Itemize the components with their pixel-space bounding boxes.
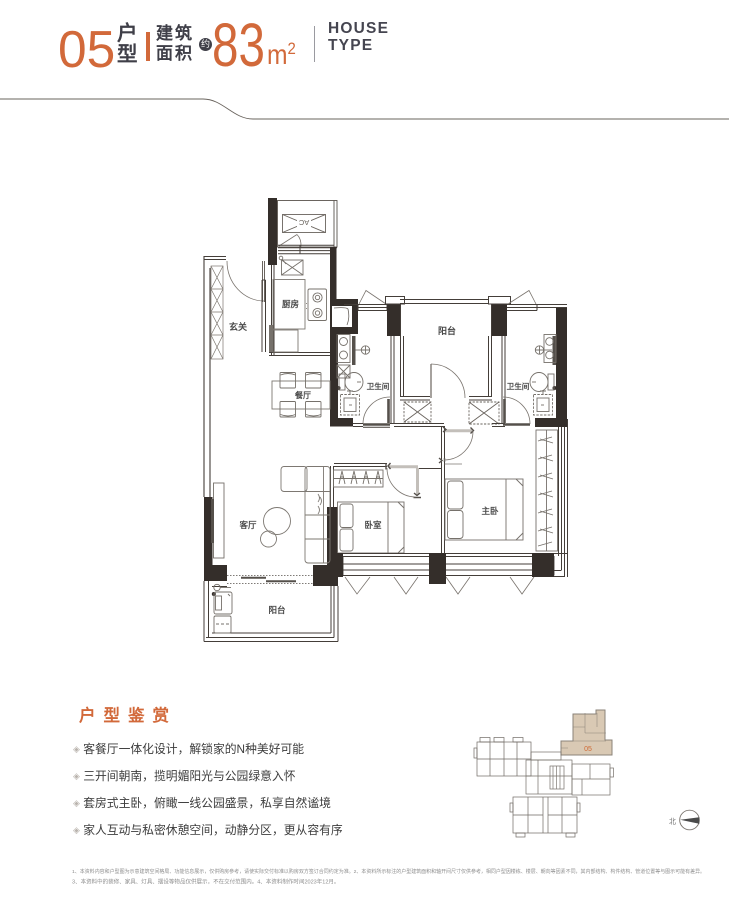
svg-text:餐厅: 餐厅 bbox=[294, 390, 311, 400]
svg-text:卫生间: 卫生间 bbox=[507, 381, 530, 391]
svg-text:卧室: 卧室 bbox=[364, 520, 382, 530]
svg-text:05: 05 bbox=[584, 746, 592, 753]
svg-text:阳台: 阳台 bbox=[438, 325, 456, 336]
svg-text:厨房: 厨房 bbox=[282, 299, 299, 309]
svg-text:卫生间: 卫生间 bbox=[367, 381, 390, 391]
svg-text:阳台: 阳台 bbox=[268, 605, 286, 615]
svg-text:玄关: 玄关 bbox=[229, 321, 247, 332]
svg-text:主卧: 主卧 bbox=[481, 506, 499, 516]
svg-text:北: 北 bbox=[669, 818, 676, 826]
svg-text:AC: AC bbox=[298, 218, 309, 227]
svg-text:客厅: 客厅 bbox=[238, 520, 257, 530]
